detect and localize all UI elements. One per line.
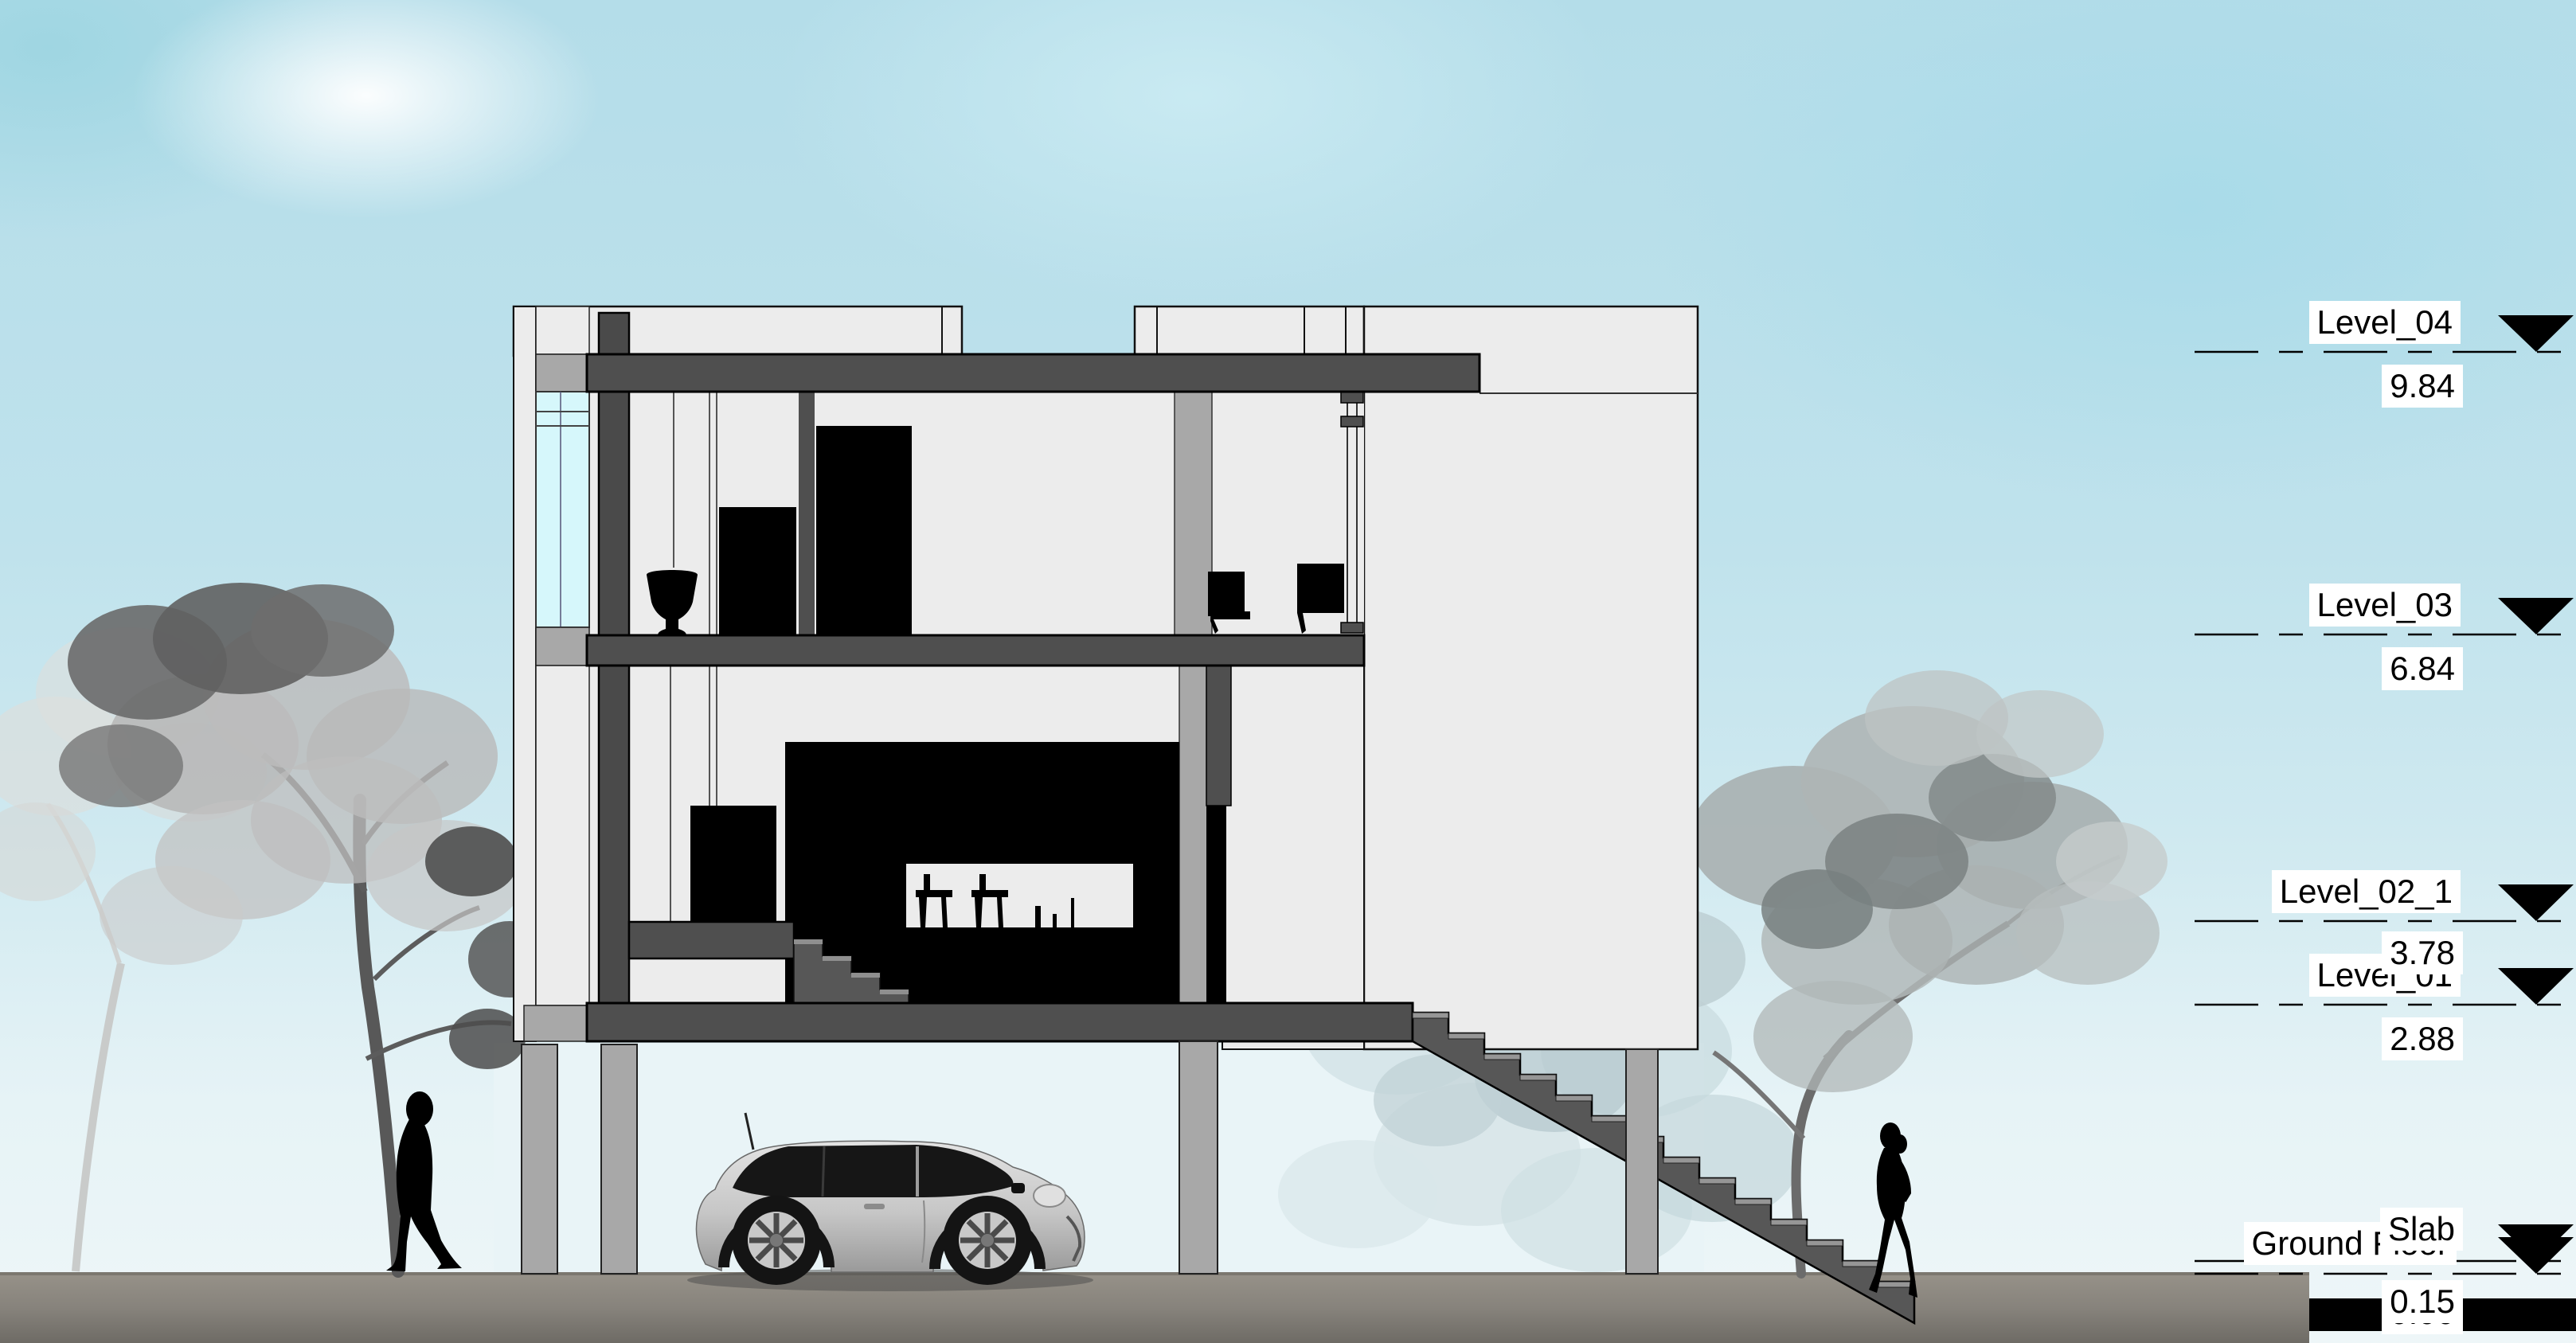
- left-wall: [514, 306, 589, 1041]
- car-front-wheel: [943, 1196, 1032, 1285]
- level2-1-label: Level_02_1: [2272, 870, 2461, 913]
- facade-block: [1364, 306, 1698, 1049]
- car-mirror: [1011, 1183, 1025, 1193]
- level3-slab: [587, 635, 1364, 666]
- interior-dark-post: [799, 356, 815, 635]
- drawing-layer: [0, 0, 2576, 1343]
- level3-value: 6.84: [2382, 647, 2463, 690]
- level2-1-marker-triangle: [2498, 884, 2574, 921]
- parapet-right-strip: [1135, 306, 1364, 356]
- black-cabinet: [690, 806, 776, 922]
- level-markers: [2195, 315, 2576, 1274]
- section-drawing-canvas: Level_04 9.84 Level_03 6.84 Level_02_1 L…: [0, 0, 2576, 1343]
- mezzanine-landing: [629, 922, 794, 958]
- interior-upper-floor: [589, 356, 1364, 635]
- slab-label: Slab: [2380, 1208, 2463, 1251]
- level3-label: Level_03: [2309, 584, 2461, 627]
- level4-value: 9.84: [2382, 365, 2463, 408]
- glass-strip: [536, 392, 589, 627]
- slab-value: 0.15: [2382, 1280, 2463, 1323]
- level1-value: 2.88: [2382, 1017, 2463, 1060]
- wardrobe-b: [816, 426, 912, 635]
- walking-woman-silhouette: [1869, 1122, 1917, 1298]
- car-headlight: [1034, 1185, 1065, 1207]
- car-rear-wheel: [732, 1196, 821, 1285]
- wardrobe-a: [719, 507, 796, 635]
- left-tree-group: [0, 583, 551, 1271]
- ground: [0, 1272, 2576, 1343]
- mid-column-upper: [1175, 392, 1212, 635]
- level1-slab: [587, 1003, 1413, 1041]
- facade-block-lower: [1222, 666, 1364, 1049]
- level4-marker-triangle: [2498, 315, 2574, 352]
- level2-1-value: 3.78: [2382, 931, 2463, 974]
- level3-marker-triangle: [2498, 598, 2574, 634]
- roof-slab: [587, 354, 1480, 392]
- ground-marker-triangle: [2498, 1237, 2574, 1274]
- level1-marker-triangle: [2498, 968, 2574, 1005]
- level4-label: Level_04: [2309, 301, 2461, 344]
